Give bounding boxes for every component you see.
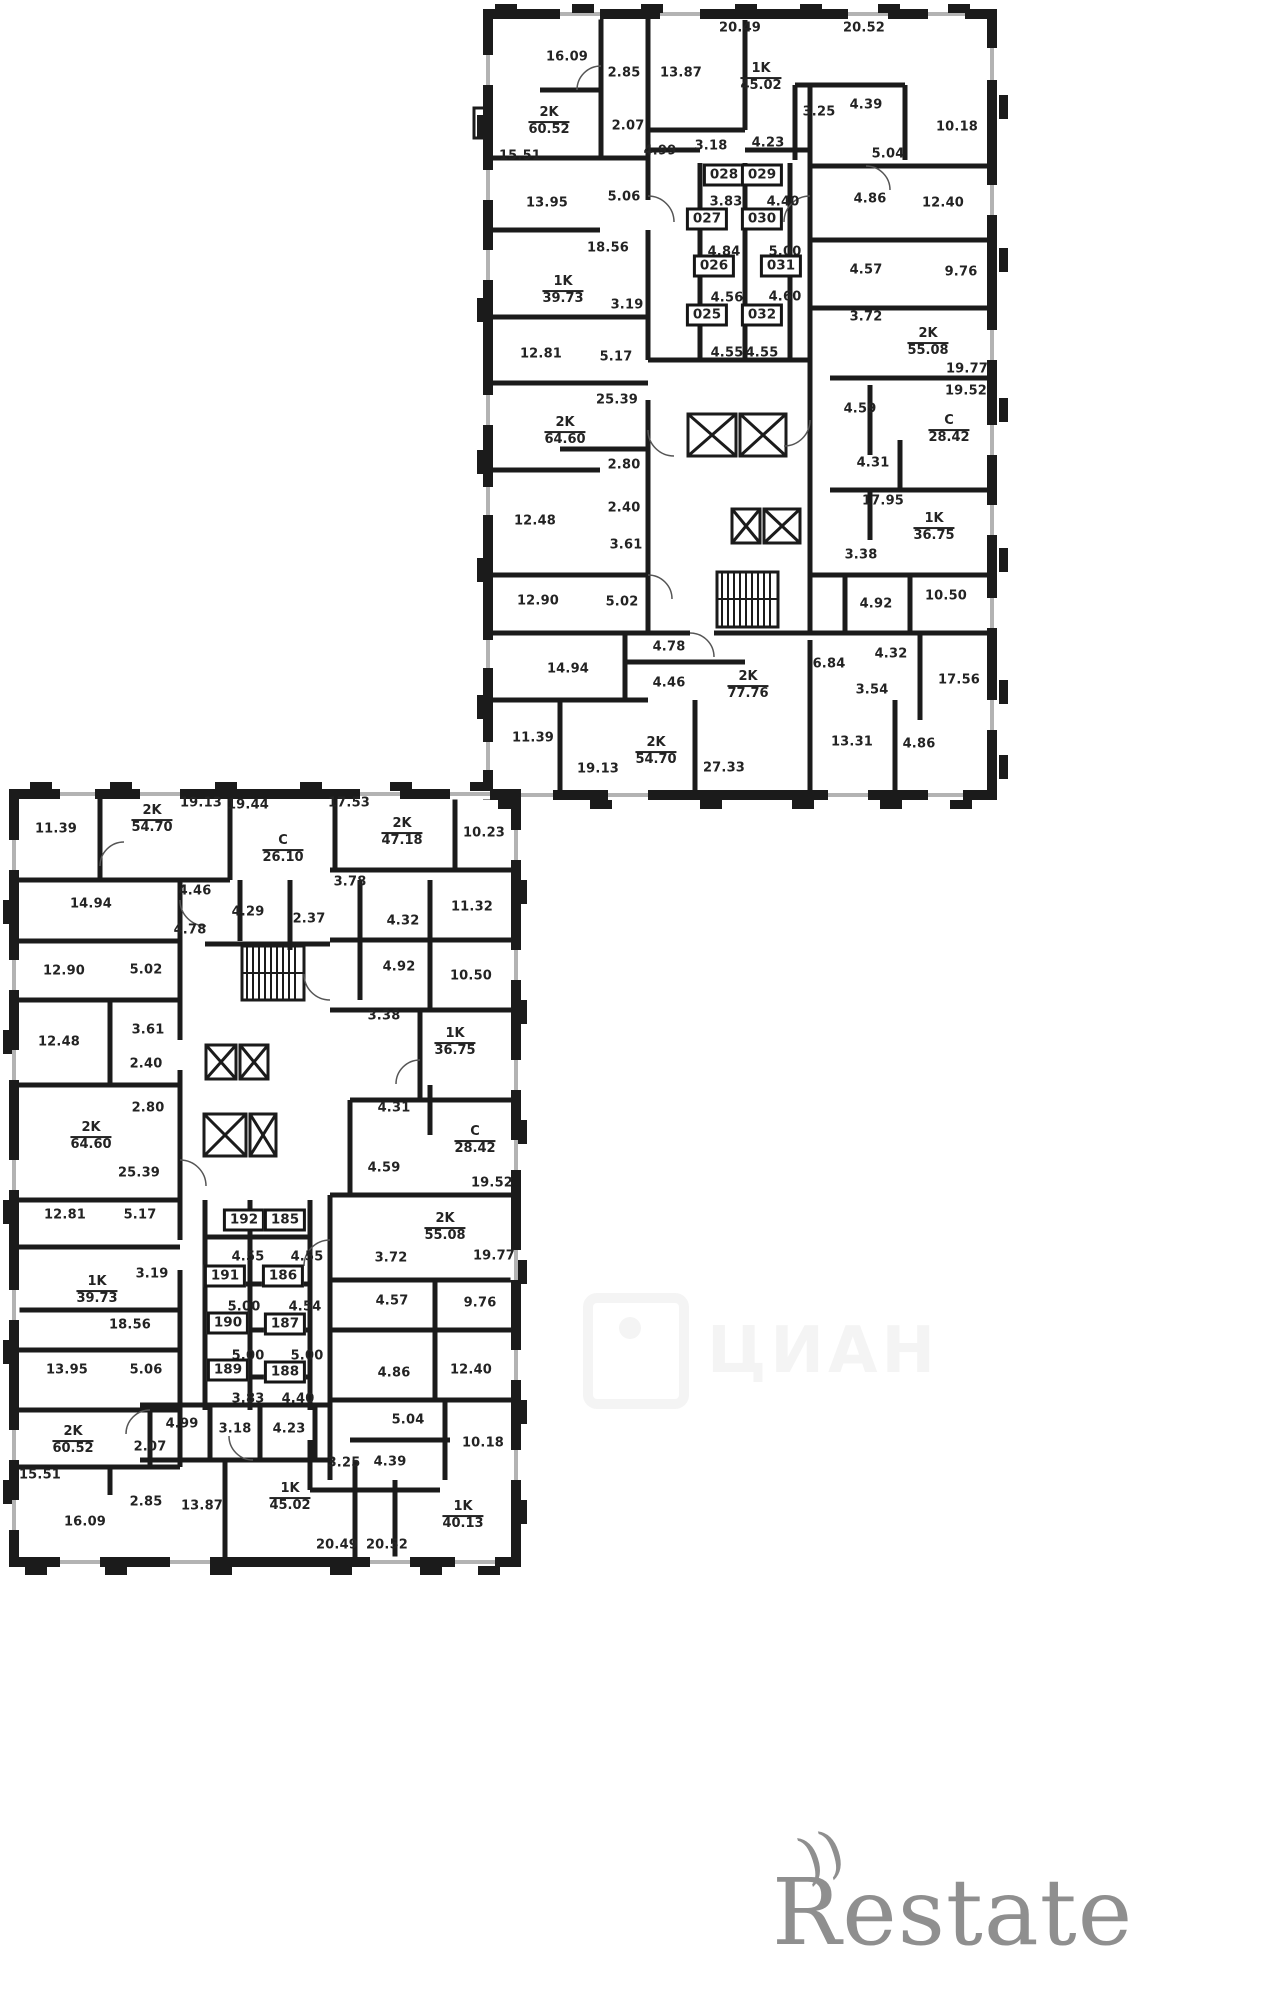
floorplan-page: 20.4920.5216.092.8513.871K45.022K60.522.… xyxy=(0,0,1285,2000)
floorplan-walls xyxy=(0,0,1285,2000)
cian-watermark-text: ЦИАН xyxy=(707,1314,939,1388)
restate-watermark: )) Restate xyxy=(772,1862,1285,1963)
cian-logo-icon xyxy=(583,1293,689,1409)
cian-watermark: ЦИАН xyxy=(583,1291,943,1411)
